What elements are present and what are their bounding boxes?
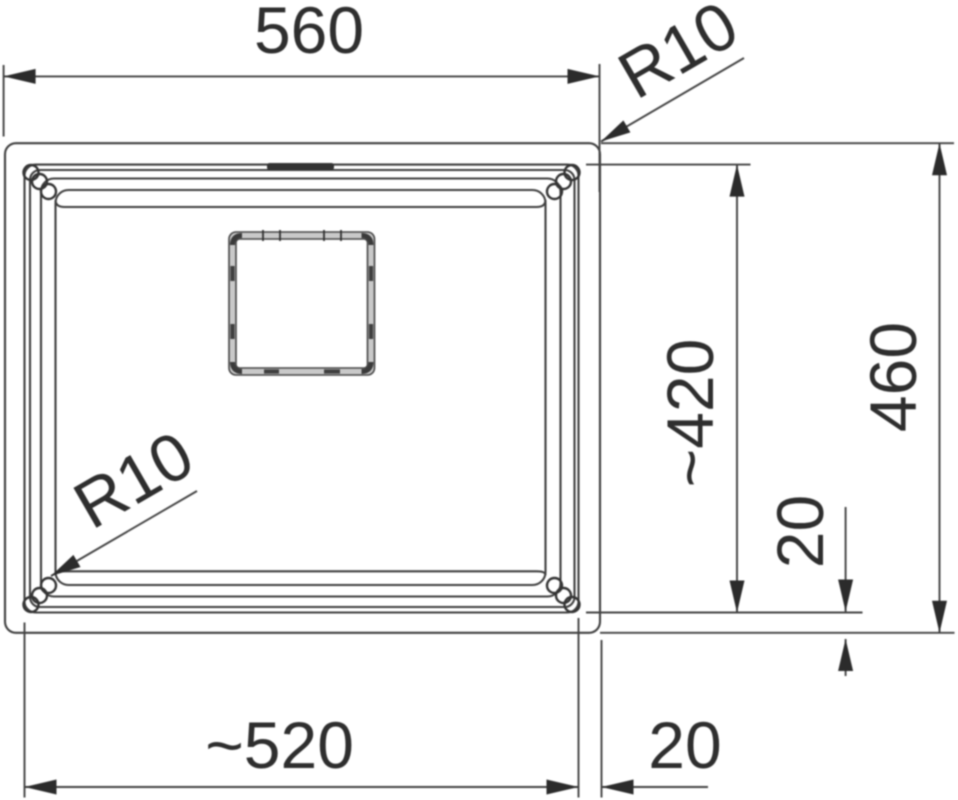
svg-text:560: 560	[254, 0, 364, 67]
svg-text:20: 20	[763, 495, 837, 568]
svg-text:20: 20	[648, 708, 721, 782]
svg-text:~520: ~520	[205, 708, 354, 782]
svg-text:~420: ~420	[653, 339, 727, 488]
svg-text:460: 460	[856, 322, 930, 432]
svg-text:R10: R10	[62, 417, 206, 543]
